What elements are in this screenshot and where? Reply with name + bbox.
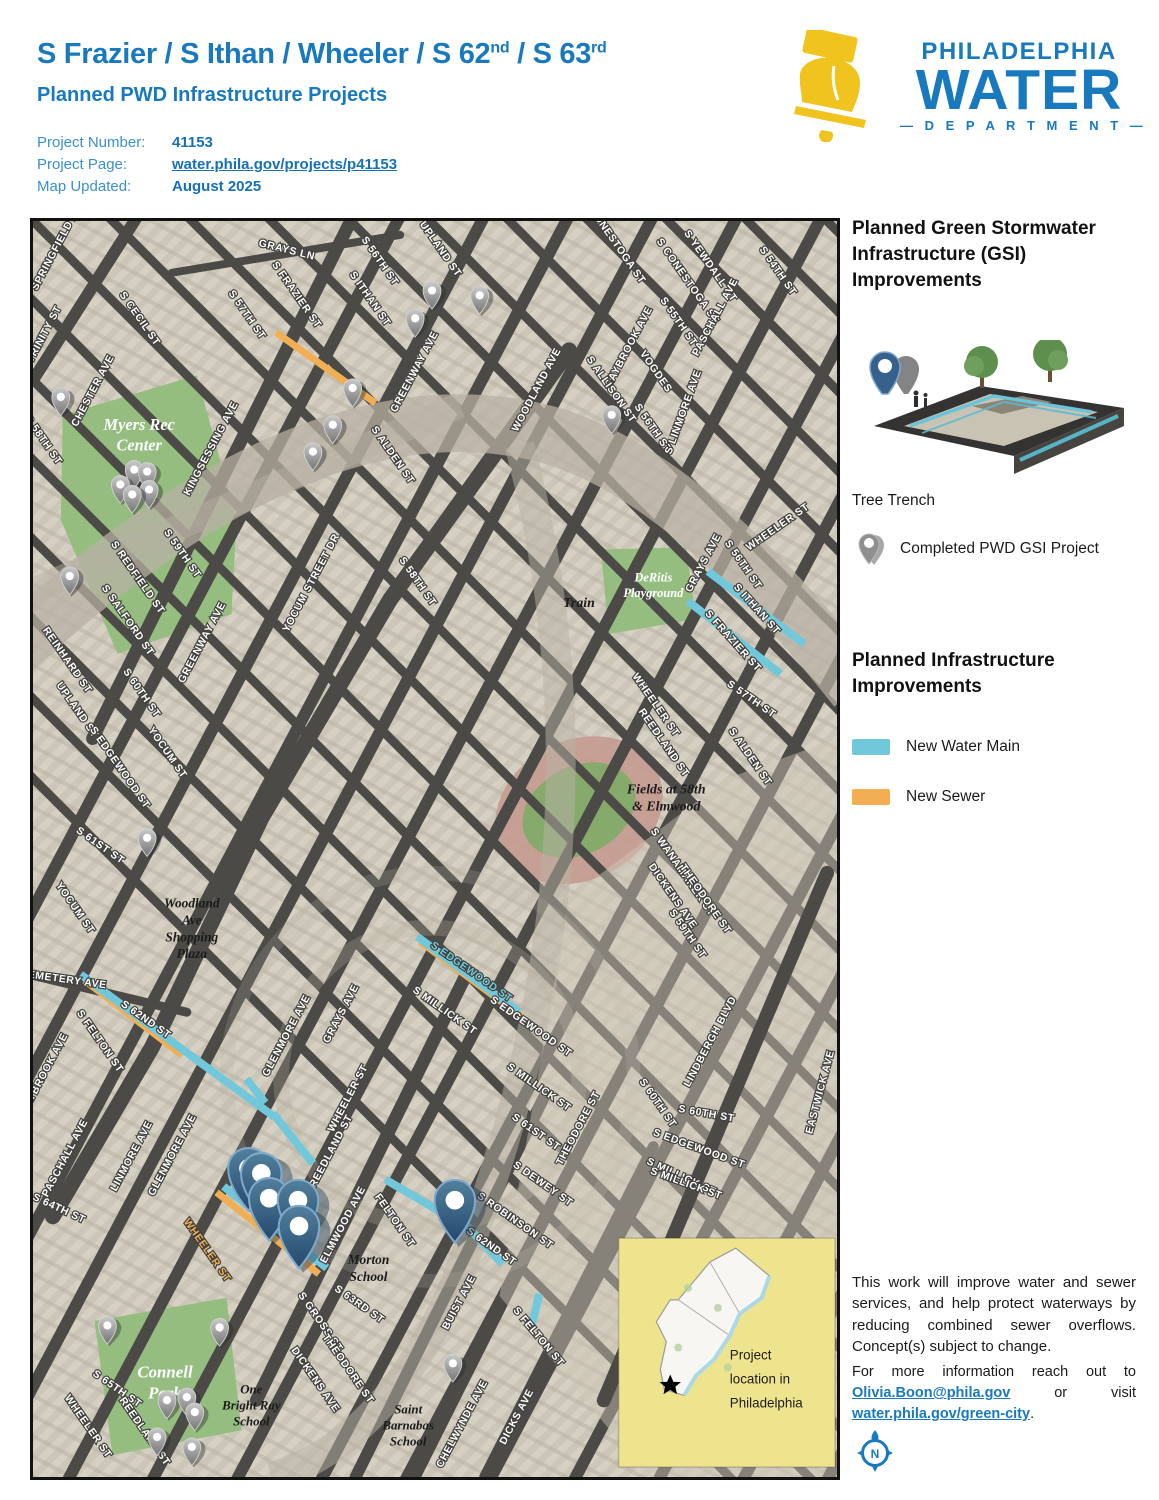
- project-page-row: Project Page:water.phila.gov/projects/p4…: [37, 156, 537, 173]
- new-sewer-swatch: [852, 789, 890, 805]
- tree-trench-caption: Tree Trench: [852, 492, 1136, 510]
- logo-department: — D E P A R T M E N T —: [900, 116, 1138, 136]
- contact-suffix: .: [1030, 1406, 1034, 1422]
- project-number-label: Project Number:: [37, 134, 172, 151]
- pwd-wordmark: PHILADELPHIA WATER — D E P A R T M E N T…: [900, 40, 1138, 136]
- svg-text:Philadelphia: Philadelphia: [730, 1395, 803, 1410]
- infra-heading: Planned Infrastructure Improvements: [852, 648, 1136, 700]
- description-paragraph: This work will improve water and sewer s…: [852, 1272, 1136, 1357]
- page-title: S Frazier / S Ithan / Wheeler / S 62nd /…: [37, 38, 606, 71]
- project-page-link[interactable]: water.phila.gov/projects/p41153: [172, 156, 397, 173]
- completed-gsi-pin-icon: [852, 528, 888, 570]
- completed-gsi-legend-row: Completed PWD GSI Project: [852, 528, 1136, 570]
- legend-row-water: New Water Main: [852, 738, 1136, 756]
- contact-paragraph: For more information reach out to Olivia…: [852, 1362, 1136, 1425]
- svg-text:N: N: [871, 1447, 880, 1461]
- page: S Frazier / S Ithan / Wheeler / S 62nd /…: [0, 0, 1159, 1500]
- project-number-row: Project Number:41153: [37, 134, 537, 151]
- map-updated-label: Map Updated:: [37, 178, 172, 195]
- north-arrow-icon: N: [852, 1428, 898, 1474]
- svg-text:Project: Project: [730, 1348, 772, 1363]
- green-city-link[interactable]: water.phila.gov/green-city: [852, 1406, 1030, 1422]
- new-sewer-label: New Sewer: [906, 788, 985, 806]
- contact-email-link[interactable]: Olivia.Boon@phila.gov: [852, 1385, 1010, 1401]
- water-main-swatch: [852, 739, 890, 755]
- title-superscript: nd: [490, 39, 509, 56]
- project-map[interactable]: GRAYS LNS 56TH STUPLAND STS FRAZIER STS …: [30, 218, 840, 1480]
- svg-text:location in: location in: [730, 1371, 790, 1386]
- contact-prefix: For more information reach out to: [852, 1364, 1136, 1380]
- map-updated-value: August 2025: [172, 178, 261, 195]
- logo-water: WATER: [900, 64, 1138, 116]
- page-subtitle: Planned PWD Infrastructure Projects: [37, 84, 387, 107]
- svg-text:MortonSchool: MortonSchool: [347, 1252, 390, 1284]
- water-main-label: New Water Main: [906, 738, 1020, 756]
- legend-row-sewer: New Sewer: [852, 788, 1136, 806]
- aerial-map-canvas[interactable]: GRAYS LNS 56TH STUPLAND STS FRAZIER STS …: [33, 221, 837, 1477]
- tree-trench-illustration: [852, 340, 1136, 490]
- map-updated-row: Map Updated:August 2025: [37, 178, 537, 195]
- gsi-heading: Planned Green Stormwater Infrastructure …: [852, 216, 1136, 295]
- project-number-value: 41153: [172, 134, 213, 151]
- pwd-logo: PHILADELPHIA WATER — D E P A R T M E N T…: [782, 26, 1142, 156]
- svg-text:Train: Train: [563, 596, 595, 611]
- completed-gsi-legend-label: Completed PWD GSI Project: [900, 540, 1099, 558]
- contact-mid: or visit: [1010, 1385, 1136, 1401]
- liberty-bell-icon: [782, 30, 882, 142]
- planned-gsi-pin-icon: [870, 352, 919, 394]
- title-superscript: rd: [591, 39, 606, 56]
- project-page-label: Project Page:: [37, 156, 172, 173]
